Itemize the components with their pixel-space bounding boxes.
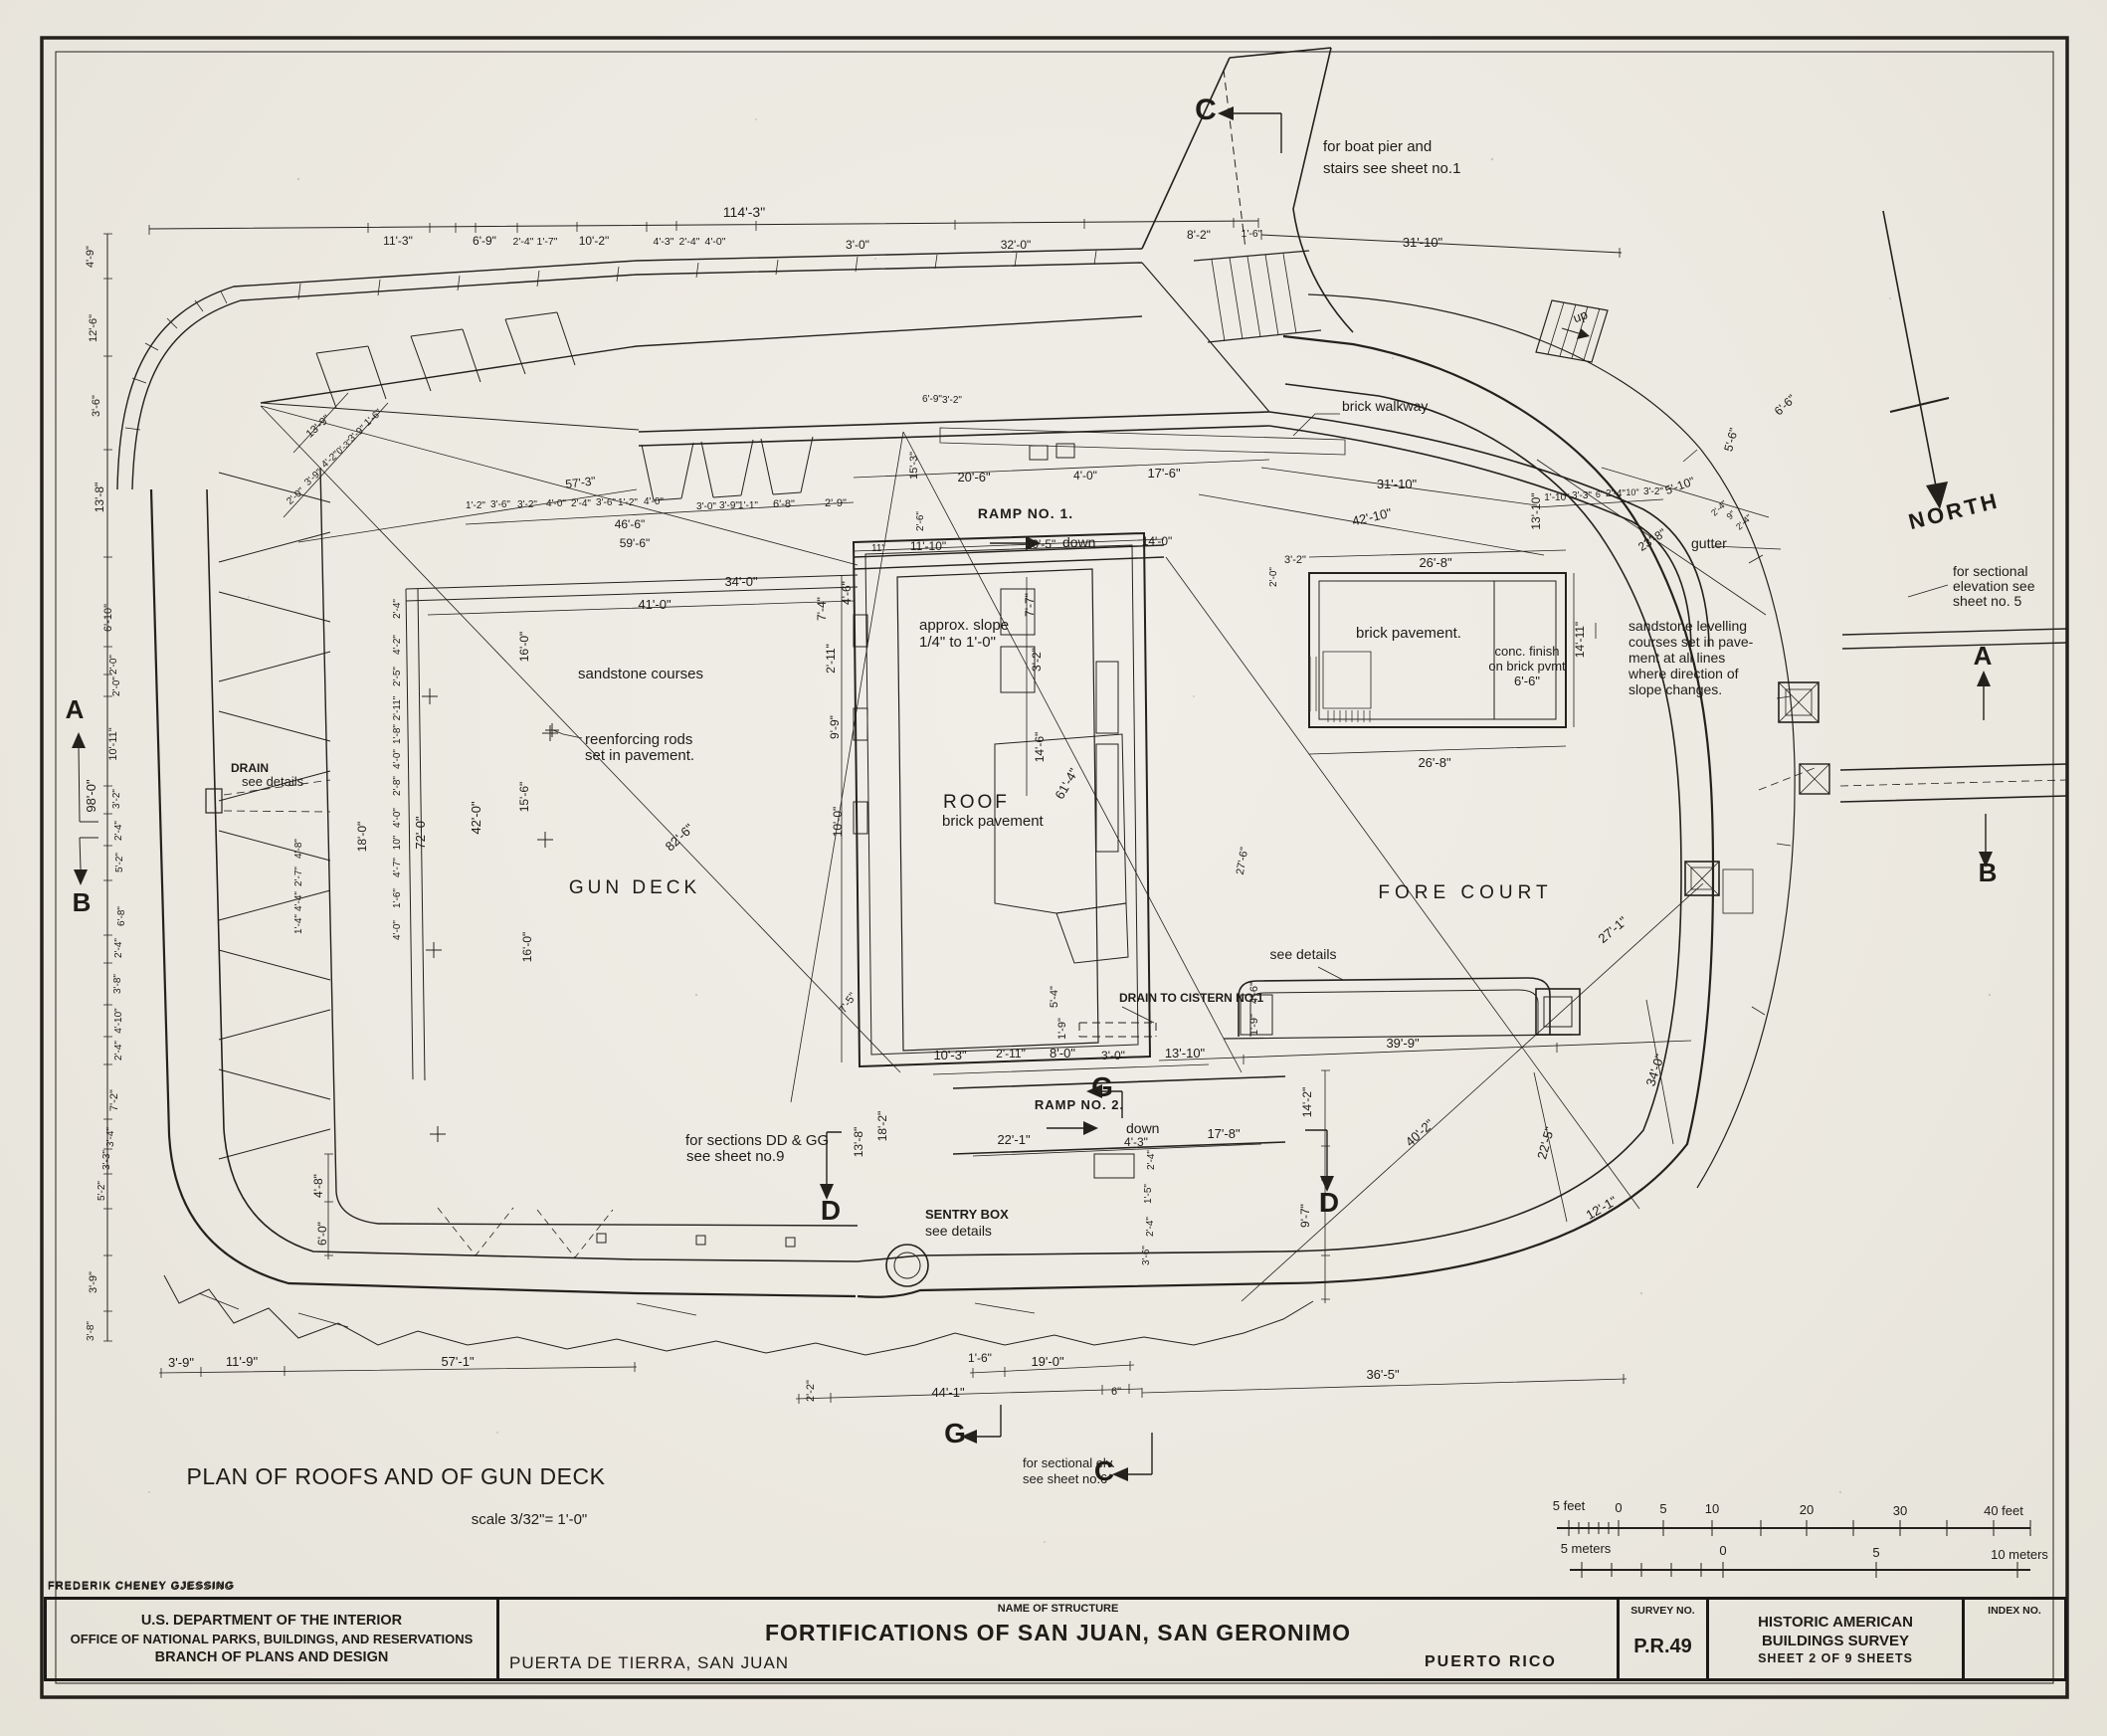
- drawing-label: 4'-0": [392, 920, 403, 940]
- drawing-label: 27'-6": [1235, 847, 1251, 876]
- drawing-label: 26'-8": [1419, 555, 1452, 570]
- drawing-label: 44'-1": [931, 1385, 965, 1400]
- drawing-label: C: [1094, 1455, 1114, 1486]
- drawing-label: 14'-6": [1033, 732, 1047, 763]
- habs-line-2: BUILDINGS SURVEY: [1762, 1633, 1909, 1649]
- drawing-label: 2'-11": [824, 644, 838, 674]
- drawing-label: 8'-2": [1187, 228, 1211, 242]
- drawing-label: D: [1319, 1187, 1339, 1218]
- drawing-label: 0: [1719, 1543, 1726, 1558]
- section-markers: [72, 106, 1993, 1481]
- drawing-label: conc. finish: [1494, 644, 1559, 659]
- drawing-label: 114'-3": [723, 204, 765, 220]
- drawing-label: 5'-4": [1049, 986, 1060, 1008]
- agency-line-1: U.S. DEPARTMENT OF THE INTERIOR: [141, 1613, 402, 1629]
- drawing-label: 3'-2": [942, 395, 962, 406]
- drawing-label: 6'-6": [1772, 392, 1799, 419]
- drawing-label: see details: [925, 1223, 992, 1239]
- drawing-label: 57'-3": [564, 474, 596, 491]
- drawing-label: 4'-0": [705, 236, 726, 248]
- drawing-label: RAMP NO. 1.: [978, 505, 1073, 521]
- drawing-label: 3'-8": [86, 1321, 96, 1341]
- drawing-label: 1/4" to 1'-0": [919, 634, 996, 651]
- drawing-label: 18'-0": [355, 822, 369, 853]
- survey-number-value: P.R.49: [1620, 1636, 1706, 1658]
- drawing-label: 2'-5": [392, 667, 403, 686]
- drawing-label: 6": [1111, 1386, 1121, 1398]
- drawing-label: 13'-10": [1529, 492, 1543, 529]
- sheet-info: SHEET 2 OF 9 SHEETS: [1758, 1651, 1913, 1665]
- drawing-label: 2'-4": [679, 236, 700, 248]
- drawing-label: 3'-9": [346, 423, 368, 445]
- drawing-label: 10'-3": [933, 1048, 967, 1062]
- drawing-label: sheet no. 5: [1953, 593, 2021, 609]
- title-block-habs: HISTORIC AMERICAN BUILDINGS SURVEY SHEET…: [1706, 1600, 1962, 1678]
- drawing-label: 3'-4": [105, 1127, 116, 1147]
- drawing-label: 3'-2": [111, 789, 122, 809]
- drawing-label: 20'-6": [957, 470, 991, 484]
- drawing-label: slope changes.: [1628, 681, 1722, 697]
- drawing-label: 4'-0": [392, 749, 403, 769]
- drawing-label: scale 3/32"= 1'-0": [472, 1511, 588, 1528]
- drawing-label: FORE COURT: [1378, 882, 1552, 903]
- drawing-label: GUN DECK: [569, 877, 700, 898]
- drawing-label: 1'-9": [1056, 1018, 1068, 1040]
- drawing-label: 17'-6": [1147, 466, 1181, 481]
- drawing-label: G: [944, 1418, 966, 1448]
- drawing-label: 3'-3": [101, 1150, 112, 1170]
- drawing-label: D: [821, 1195, 841, 1226]
- drawing-label: for sectional: [1953, 563, 2027, 579]
- drawing-label: down: [1126, 1120, 1159, 1136]
- structure-territory: PUERTO RICO: [1425, 1653, 1557, 1671]
- survey-number-label: SURVEY NO.: [1620, 1605, 1706, 1617]
- drawing-label: 61'-4": [1052, 765, 1081, 802]
- drawing-label: 7'-2": [108, 1089, 120, 1111]
- sheet-frame: [42, 38, 2067, 1697]
- drawing-label: 3'-8": [112, 974, 123, 994]
- drawing-label: 2'-0": [108, 655, 119, 675]
- drawing-label: 1'-10": [1544, 492, 1570, 503]
- drawing-label: 13'-8": [852, 1127, 865, 1158]
- drawing-label: 14'-2": [1300, 1087, 1314, 1118]
- drawing-label: 16'-0": [520, 932, 534, 963]
- drawing-label: 3'-0": [696, 501, 716, 512]
- drawing-label: 98'-0": [84, 779, 98, 813]
- drawing-label: 1'-4": [293, 914, 304, 934]
- drawing-label: 26'-8": [1418, 755, 1451, 770]
- drawing-label: brick walkway: [1342, 398, 1428, 414]
- leader-lines: [545, 623, 1596, 1023]
- drawing-label: DRAIN: [231, 761, 269, 775]
- drawing-label: 2'-0": [1268, 567, 1279, 587]
- drawing-label: sandstone levelling: [1628, 618, 1747, 634]
- drawing-label: 3'-2": [1643, 486, 1663, 497]
- drawing-label: 10'-2": [579, 234, 610, 248]
- drawing-label: 0: [1615, 1500, 1622, 1515]
- drawing-label: 6'-9": [922, 394, 942, 405]
- drawing-label: 2'-4": [113, 938, 124, 958]
- drawing-label: 1'-5": [1143, 1184, 1154, 1204]
- drawing-label: 3'-6": [1141, 1246, 1152, 1265]
- drawing-label: B: [1979, 858, 1998, 887]
- drawing-label: 2'-6": [915, 511, 926, 531]
- drawing-label: 10": [392, 835, 403, 850]
- north-arrow: [1883, 211, 1949, 509]
- drawing-label: 17'-8": [1207, 1126, 1241, 1141]
- drawing-label: 3'-6": [596, 497, 616, 508]
- drawing-label: 2'-11": [996, 1047, 1026, 1061]
- drawing-label: 32'-0": [1001, 238, 1032, 252]
- drawing-label: 4'-8": [311, 1174, 325, 1198]
- drawing-label: 3'-6": [490, 499, 510, 510]
- drawing-label: 36'-5": [1366, 1367, 1400, 1382]
- drawing-label: 12'-6": [88, 314, 99, 342]
- drawing-label: 18'-2": [875, 1111, 889, 1142]
- draftsman-name: FREDERIK CHENEY GJESSING: [48, 1580, 235, 1592]
- drawing-label: ment at all lines: [1628, 650, 1725, 666]
- drawing-label: 6": [1596, 489, 1604, 499]
- drawing-label: 4'-0": [392, 808, 403, 828]
- drawing-label: 4'-10": [113, 1008, 124, 1034]
- drawing-label: 13'-9": [304, 413, 333, 441]
- drawing-label: 4'-2": [392, 635, 403, 655]
- drawing-label: see details: [242, 774, 304, 789]
- agency-line-3: BRANCH OF PLANS AND DESIGN: [155, 1649, 389, 1665]
- drawing-label: 39'-9": [1386, 1036, 1420, 1051]
- drawing-label: 10'-11": [107, 727, 119, 760]
- drawing-label: 9'-9": [828, 715, 842, 739]
- drawing-label: 1'-6": [392, 888, 403, 908]
- drawing-label: down: [1062, 534, 1095, 550]
- drawing-label: 14'-0": [1142, 534, 1173, 548]
- habs-line-1: HISTORIC AMERICAN: [1758, 1614, 1913, 1631]
- drawing-label: B: [73, 887, 92, 917]
- drawing-label: 4'-4": [293, 891, 304, 911]
- drawing-label: 2'-4": [113, 821, 124, 841]
- drawing-label: 82'-6": [663, 821, 697, 855]
- drawing-label: 15'-3": [908, 452, 920, 480]
- drawing-label: 5 feet: [1553, 1498, 1586, 1513]
- drawing-label: 3'-0": [1101, 1049, 1125, 1062]
- drawing-label: 10'-5": [1026, 537, 1056, 551]
- drawing-label: 4'-9": [85, 246, 96, 268]
- drawing-label: 1'-8": [392, 724, 403, 744]
- drawing-label: 1'-6": [968, 1351, 992, 1365]
- drawing-sheet: PLAN OF ROOFS AND OF GUN DECKscale 3/32"…: [0, 0, 2107, 1736]
- drawing-label: 4'-0": [644, 496, 664, 507]
- drawing-label: 1'-2": [618, 497, 638, 508]
- drawing-label: set in pavement.: [585, 747, 694, 764]
- drawing-label: C: [1195, 94, 1217, 126]
- drawing-label: sandstone courses: [578, 666, 703, 682]
- drawing-label: 2'-4": [1146, 1150, 1157, 1170]
- drawing-label: 10": [1626, 487, 1638, 497]
- drawing-label: 2'-4": [392, 599, 403, 619]
- drawing-label: 15'-6": [517, 782, 531, 813]
- drawing-label: 2'-8": [392, 776, 403, 796]
- drawing-label: 2'-4": [1145, 1217, 1156, 1237]
- drawing-label: 7'-7": [1023, 593, 1037, 617]
- drawing-label: 1'-2": [466, 500, 485, 511]
- drawing-label: 3'-9": [719, 500, 739, 511]
- drawing-label: 2'-4": [1734, 512, 1754, 532]
- drawing-label: 34'-0": [724, 574, 758, 589]
- drawing-label: reenforcing rods: [585, 731, 692, 748]
- drawing-label: 4'-6": [840, 581, 854, 605]
- drawing-label: 1'-6": [1242, 228, 1262, 240]
- drawing-label: PLAN OF ROOFS AND OF GUN DECK: [187, 1463, 606, 1489]
- drawing-label: 7'-5": [837, 991, 859, 1016]
- drawing-label: 6'-6": [1514, 674, 1540, 688]
- drawing-label: where direction of: [1628, 666, 1739, 681]
- drawing-label: 5'-2": [96, 1181, 107, 1201]
- drawing-label: 5 meters: [1561, 1541, 1612, 1556]
- index-number-label: INDEX NO.: [1965, 1605, 2064, 1617]
- drawing-label: brick pavement.: [1356, 625, 1461, 642]
- drawing-label: RAMP NO. 2.: [1035, 1097, 1124, 1112]
- drawing-label: 8'-0": [1050, 1046, 1075, 1061]
- drawing-label: 11'-10": [910, 539, 946, 553]
- drawing-label: 7'-4": [815, 597, 829, 621]
- title-block-structure: NAME OF STRUCTURE FORTIFICATIONS OF SAN …: [496, 1600, 1617, 1678]
- drawing-label: 12'-1": [1584, 1193, 1621, 1223]
- drawing-label: 1'-9": [1248, 1014, 1260, 1036]
- drawing-label: 6'-9": [473, 234, 496, 248]
- drawing-label: A: [66, 694, 85, 724]
- drawing-label: 57'-1": [441, 1354, 475, 1369]
- drawing-label: 3'-2": [1284, 554, 1306, 566]
- title-block: U.S. DEPARTMENT OF THE INTERIOR OFFICE O…: [44, 1597, 2067, 1681]
- drawing-label: 3'-9": [168, 1355, 194, 1370]
- drawing-label: 31'-10": [1377, 477, 1418, 491]
- drawing-label: A: [1974, 641, 1993, 671]
- drawing-label: 11": [871, 543, 885, 554]
- drawing-label: 11'-9": [226, 1354, 259, 1369]
- drawing-label: 10: [1705, 1501, 1719, 1516]
- drawing-label: 46'-6": [615, 517, 646, 531]
- title-block-index: INDEX NO.: [1962, 1600, 2064, 1678]
- drawing-label: for boat pier and: [1323, 138, 1432, 155]
- drawing-label: stairs see sheet no.1: [1323, 160, 1460, 177]
- drawing-label: 13'-10": [1165, 1046, 1206, 1061]
- drawing-label: 2'-4": [571, 498, 591, 509]
- scale-bars: [1557, 1520, 2030, 1578]
- drawing-label: 5'-6": [1721, 427, 1741, 454]
- drawing-label: 41'-0": [638, 597, 671, 612]
- title-block-agency: U.S. DEPARTMENT OF THE INTERIOR OFFICE O…: [47, 1600, 496, 1678]
- drawing-label: 4'-0": [1073, 469, 1097, 482]
- drawing-label: 34'-0": [1642, 1052, 1667, 1087]
- drawing-label: 27'-1": [1596, 913, 1630, 946]
- drawing-label: see sheet no.9: [686, 1148, 784, 1165]
- structure-name: FORTIFICATIONS OF SAN JUAN, SAN GERONIMO: [499, 1620, 1617, 1646]
- drawing-label: 4'-8": [293, 839, 304, 859]
- drawing-label: 3'-2": [517, 499, 537, 510]
- drawing-labels: PLAN OF ROOFS AND OF GUN DECKscale 3/32"…: [48, 94, 2048, 1593]
- drawing-label: for sections DD & GG: [685, 1132, 829, 1149]
- drawing-label: brick pavement: [942, 813, 1045, 830]
- drawing-label: 4'-3": [1124, 1135, 1148, 1149]
- drawing-label: 2'-4": [113, 1041, 124, 1061]
- drawing-label: courses set in pave-: [1628, 634, 1754, 650]
- drawing-label: elevation see: [1953, 578, 2035, 594]
- drawing-label: 2'-4": [513, 236, 534, 248]
- drawing-label: 3'-0": [846, 238, 869, 252]
- drawing-label: 22'-5": [1534, 1125, 1557, 1161]
- drawing-label: 5'-2": [114, 853, 125, 872]
- drawing-label: 72'-0": [413, 816, 428, 850]
- drawing-label: 11'-3": [383, 234, 413, 248]
- drawing-label: 3'-3": [1572, 490, 1592, 501]
- drawing-label: 40 feet: [1984, 1503, 2023, 1518]
- drawing-label: 9'-7": [1298, 1204, 1312, 1228]
- drawing-label: 6'-10": [102, 604, 114, 632]
- drawing-label: 2'-0": [111, 676, 122, 696]
- drawing-label: DRAIN TO CISTERN NO.1: [1119, 991, 1263, 1005]
- drawing-label: 10'-0": [831, 807, 845, 838]
- drawing-label: 20: [1800, 1502, 1814, 1517]
- drawing-label: 1'-1": [738, 500, 758, 511]
- drawing-label: approx. slope: [919, 617, 1009, 634]
- drawing-label: 40'-2": [1403, 1116, 1437, 1150]
- drawing-label: 6'-8": [116, 906, 127, 926]
- drawing-label: SENTRY BOX: [925, 1207, 1009, 1222]
- drawing-label: see details: [1270, 946, 1337, 962]
- drawing-label: 13'-8": [93, 482, 106, 513]
- drawing-label: 2'-9": [825, 497, 847, 509]
- drawing-label: 4'-3": [654, 236, 674, 248]
- drawing-label: 3'-2": [1030, 648, 1044, 672]
- drawing-label: 2'-2": [805, 1380, 817, 1402]
- drawing-label: 3'-9": [88, 1271, 99, 1293]
- name-of-structure-label: NAME OF STRUCTURE: [499, 1603, 1617, 1615]
- drawing-label: NORTH: [1906, 487, 2002, 534]
- drawing-label: ROOF: [943, 792, 1010, 813]
- drawing-label: 5: [1872, 1545, 1879, 1560]
- drawing-label: 30: [1893, 1503, 1907, 1518]
- drawing-label: 5: [1659, 1501, 1666, 1516]
- drawing-label: 4'-7": [392, 858, 403, 877]
- drawing-label: 2'-4": [1606, 488, 1626, 499]
- drawing-label: 19'-0": [1031, 1354, 1064, 1369]
- drawing-label: gutter: [1691, 535, 1727, 551]
- title-block-survey: SURVEY NO. P.R.49: [1617, 1600, 1706, 1678]
- drawing-label: 1'-7": [537, 236, 558, 248]
- structure-location: PUERTA DE TIERRA, SAN JUAN: [509, 1653, 789, 1673]
- agency-line-2: OFFICE OF NATIONAL PARKS, BUILDINGS, AND…: [71, 1632, 474, 1646]
- drawing-label: 59'-6": [620, 536, 651, 550]
- drawing-label: 2'-7": [293, 867, 304, 886]
- drawing-label: 9": [1725, 508, 1738, 521]
- drawing-label: 4'-0": [546, 498, 566, 509]
- drawing-label: 6'-0": [315, 1222, 329, 1246]
- drawing-label: 31'-10": [1403, 235, 1443, 250]
- drawing-label: 42'-0": [469, 801, 483, 835]
- plan-drawing-svg: PLAN OF ROOFS AND OF GUN DECKscale 3/32"…: [0, 0, 2107, 1736]
- drawing-label: on brick pvmt: [1488, 659, 1566, 674]
- drawing-label: 16'-0": [517, 632, 531, 663]
- drawing-label: 3'-6": [91, 395, 102, 417]
- drawing-label: 6'-8": [773, 498, 795, 510]
- drawing-label: 22'-1": [997, 1132, 1031, 1147]
- drawing-label: 10 meters: [1991, 1547, 2048, 1562]
- drawing-label: 14'-11": [1573, 622, 1587, 658]
- drawing-label: 2'-11": [392, 695, 403, 720]
